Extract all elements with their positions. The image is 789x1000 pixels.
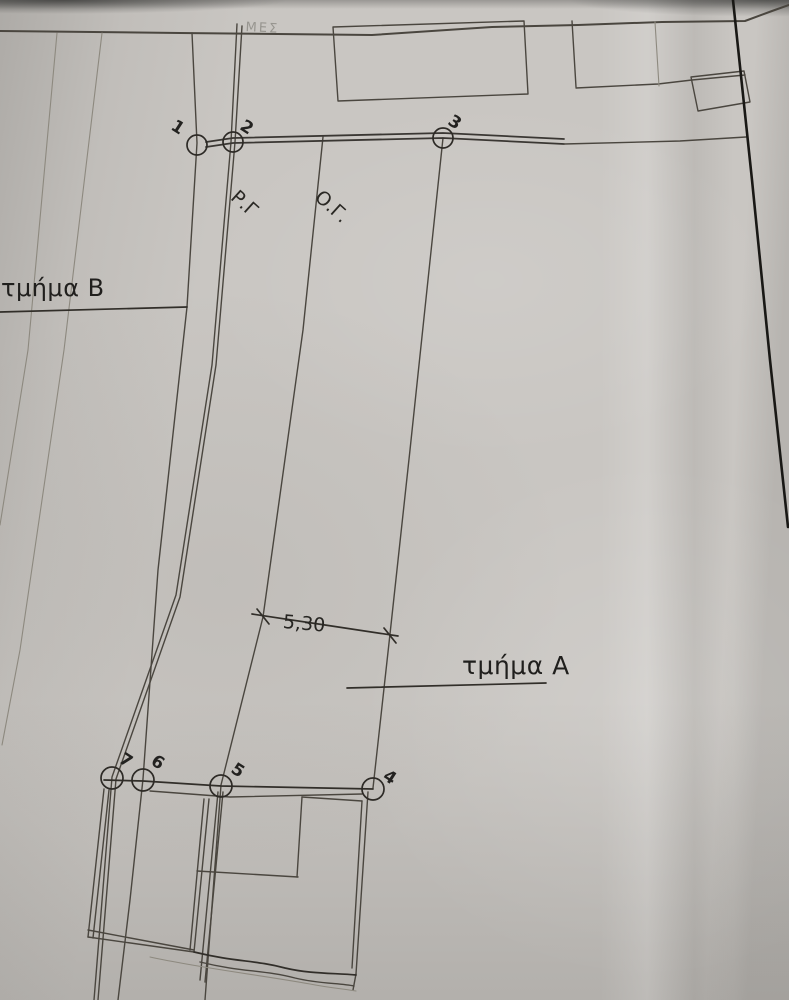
label-dimension-value: 5,30 bbox=[282, 611, 326, 637]
chain-line-7-to-4 bbox=[104, 780, 373, 789]
left-building-bottom-2 bbox=[88, 930, 194, 950]
boundary-through-point-3 bbox=[373, 138, 443, 788]
top-rectangle bbox=[333, 21, 528, 101]
right-building-right-2 bbox=[352, 801, 362, 968]
og-line bbox=[205, 137, 323, 1000]
bottom-wavy-1 bbox=[194, 952, 356, 975]
stub-vertical-1 bbox=[572, 21, 576, 87]
stub-vertical-2 bbox=[655, 22, 659, 86]
label-section-a: τμήμα Α bbox=[462, 651, 570, 680]
site-plan-svg bbox=[0, 0, 789, 1000]
label-faint-note: ΜΕΣ bbox=[245, 20, 279, 37]
survey-plan-photo: τμήμα Β τμήμα Α Ρ.Γ Ο.Γ. 5,30 ΜΕΣ 123456… bbox=[0, 0, 789, 1000]
street-line-right bbox=[564, 137, 746, 144]
section-a-leader bbox=[347, 683, 546, 688]
section-b-leader bbox=[0, 307, 187, 312]
building-top-second bbox=[150, 791, 362, 797]
boundary-b bbox=[2, 33, 102, 745]
notch-left bbox=[297, 797, 302, 877]
right-building-left-2 bbox=[205, 792, 223, 982]
left-building-bottom-1 bbox=[88, 937, 194, 952]
rg-line-2 bbox=[98, 26, 242, 1000]
right-building-corner bbox=[353, 974, 356, 990]
street-line-lower bbox=[206, 138, 564, 147]
notch-top bbox=[302, 797, 362, 801]
notch-bottom bbox=[197, 871, 298, 877]
label-section-b: τμήμα Β bbox=[1, 274, 105, 302]
dark-edge-line bbox=[733, 0, 788, 527]
right-building-right-1 bbox=[356, 792, 368, 974]
top-border bbox=[0, 5, 789, 35]
boundary-through-point-1 bbox=[118, 33, 197, 1000]
upper-horizontal bbox=[576, 75, 745, 88]
